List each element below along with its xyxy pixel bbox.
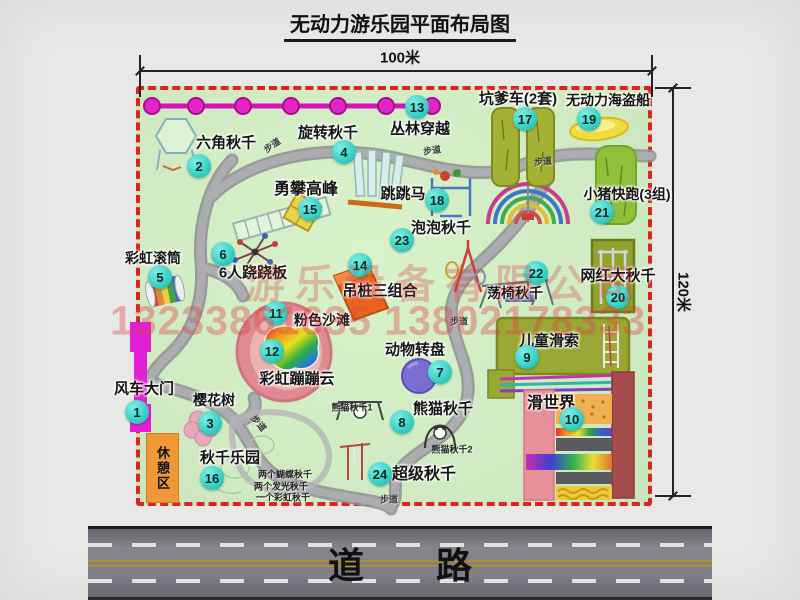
attraction-badge-3: 3 [198, 411, 222, 435]
sub-label-0: 熊猫秋千1 [331, 401, 372, 414]
path-label-3: 步道 [450, 315, 468, 328]
attraction-badge-1: 1 [125, 400, 149, 424]
attraction-label-19: 无动力海盗船 [566, 90, 650, 110]
attraction-badge-4: 4 [332, 140, 356, 164]
page-title: 无动力游乐园平面布局图 [0, 8, 800, 37]
attraction-badge-23: 23 [390, 228, 414, 252]
sub-label-1: 熊猫秋千2 [431, 443, 472, 456]
attraction-badge-5: 5 [148, 265, 172, 289]
attraction-label-6: 6人跷跷板 [219, 262, 287, 283]
attraction-label-23: 泡泡秋千 [411, 217, 471, 238]
attraction-label-5: 彩虹滚筒 [125, 248, 181, 268]
attraction-label-17: 坑爹车(2套) [479, 88, 557, 109]
labels-layer: 风车大门1六角秋千2樱花树3旋转秋千4彩虹滚筒56人跷跷板6动物转盘7熊猫秋千8… [0, 0, 800, 600]
attraction-badge-13: 13 [405, 95, 429, 119]
attraction-badge-19: 19 [577, 107, 601, 131]
attraction-badge-12: 12 [260, 339, 284, 363]
attraction-label-3: 樱花树 [193, 390, 235, 410]
sub-label-4: 一个彩虹秋千 [256, 491, 310, 504]
attraction-badge-10: 10 [560, 407, 584, 431]
attraction-label-18: 跳跳马 [380, 183, 425, 204]
attraction-badge-2: 2 [187, 154, 211, 178]
attraction-badge-11: 11 [264, 301, 288, 325]
path-label-4: 步道 [248, 412, 270, 434]
attraction-label-1: 风车大门 [114, 378, 174, 399]
attraction-badge-22: 22 [524, 261, 548, 285]
path-label-5: 步道 [380, 493, 398, 506]
attraction-badge-9: 9 [515, 345, 539, 369]
attraction-badge-24: 24 [368, 462, 392, 486]
attraction-badge-21: 21 [590, 200, 614, 224]
attraction-label-14: 吊桩三组合 [342, 280, 417, 301]
attraction-badge-7: 7 [428, 360, 452, 384]
attraction-label-4: 旋转秋千 [298, 122, 358, 143]
path-label-1: 步道 [422, 142, 442, 157]
attraction-badge-18: 18 [425, 188, 449, 212]
attraction-label-11: 粉色沙滩 [294, 310, 350, 330]
attraction-badge-17: 17 [513, 107, 537, 131]
attraction-badge-6: 6 [211, 242, 235, 266]
path-label-0: 步道 [261, 135, 283, 156]
attraction-label-7: 动物转盘 [385, 339, 445, 360]
attraction-label-12: 彩虹蹦蹦云 [259, 368, 334, 389]
attraction-label-13: 丛林穿越 [390, 118, 450, 139]
attraction-label-22: 荡椅秋千 [487, 283, 543, 303]
attraction-badge-14: 14 [348, 253, 372, 277]
attraction-badge-15: 15 [298, 197, 322, 221]
attraction-badge-16: 16 [200, 466, 224, 490]
park-layout-map: 无动力游乐园平面布局图 100米 120米 [0, 0, 800, 600]
attraction-label-24: 超级秋千 [392, 460, 456, 484]
attraction-label-8: 熊猫秋千 [413, 398, 473, 419]
attraction-label-20: 网红大秋千 [580, 265, 655, 286]
attraction-badge-8: 8 [390, 410, 414, 434]
attraction-label-15: 勇攀高峰 [274, 175, 338, 199]
attraction-label-2: 六角秋千 [196, 132, 256, 153]
attraction-label-16: 秋千乐园 [200, 447, 260, 468]
path-label-2: 步道 [533, 154, 552, 169]
attraction-badge-20: 20 [606, 285, 630, 309]
